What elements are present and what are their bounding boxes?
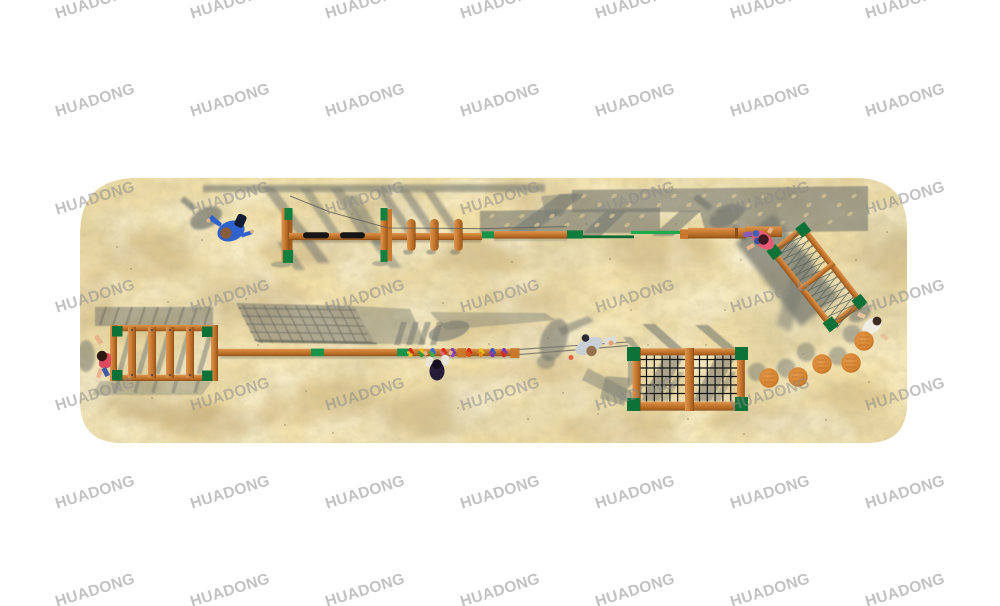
svg-text:HUADONG: HUADONG bbox=[323, 80, 407, 120]
svg-text:HUADONG: HUADONG bbox=[458, 80, 542, 120]
svg-text:HUADONG: HUADONG bbox=[728, 570, 812, 606]
svg-text:HUADONG: HUADONG bbox=[188, 472, 272, 512]
svg-text:HUADONG: HUADONG bbox=[728, 0, 812, 23]
svg-text:HUADONG: HUADONG bbox=[53, 570, 137, 606]
svg-text:HUADONG: HUADONG bbox=[188, 570, 272, 606]
svg-text:HUADONG: HUADONG bbox=[728, 472, 812, 512]
svg-text:HUADONG: HUADONG bbox=[593, 570, 677, 606]
svg-text:HUADONG: HUADONG bbox=[863, 80, 947, 120]
svg-text:HUADONG: HUADONG bbox=[593, 80, 677, 120]
svg-text:HUADONG: HUADONG bbox=[458, 472, 542, 512]
svg-text:HUADONG: HUADONG bbox=[593, 472, 677, 512]
svg-text:HUADONG: HUADONG bbox=[53, 80, 137, 120]
svg-text:HUADONG: HUADONG bbox=[323, 0, 407, 23]
svg-text:HUADONG: HUADONG bbox=[863, 472, 947, 512]
svg-text:HUADONG: HUADONG bbox=[593, 0, 677, 23]
svg-text:HUADONG: HUADONG bbox=[188, 80, 272, 120]
svg-text:HUADONG: HUADONG bbox=[458, 570, 542, 606]
svg-text:HUADONG: HUADONG bbox=[188, 0, 272, 23]
svg-text:HUADONG: HUADONG bbox=[728, 80, 812, 120]
svg-text:HUADONG: HUADONG bbox=[863, 0, 947, 23]
svg-text:HUADONG: HUADONG bbox=[53, 0, 137, 23]
svg-text:HUADONG: HUADONG bbox=[53, 472, 137, 512]
svg-text:HUADONG: HUADONG bbox=[458, 0, 542, 23]
svg-text:HUADONG: HUADONG bbox=[323, 472, 407, 512]
svg-text:HUADONG: HUADONG bbox=[863, 570, 947, 606]
svg-text:HUADONG: HUADONG bbox=[323, 570, 407, 606]
